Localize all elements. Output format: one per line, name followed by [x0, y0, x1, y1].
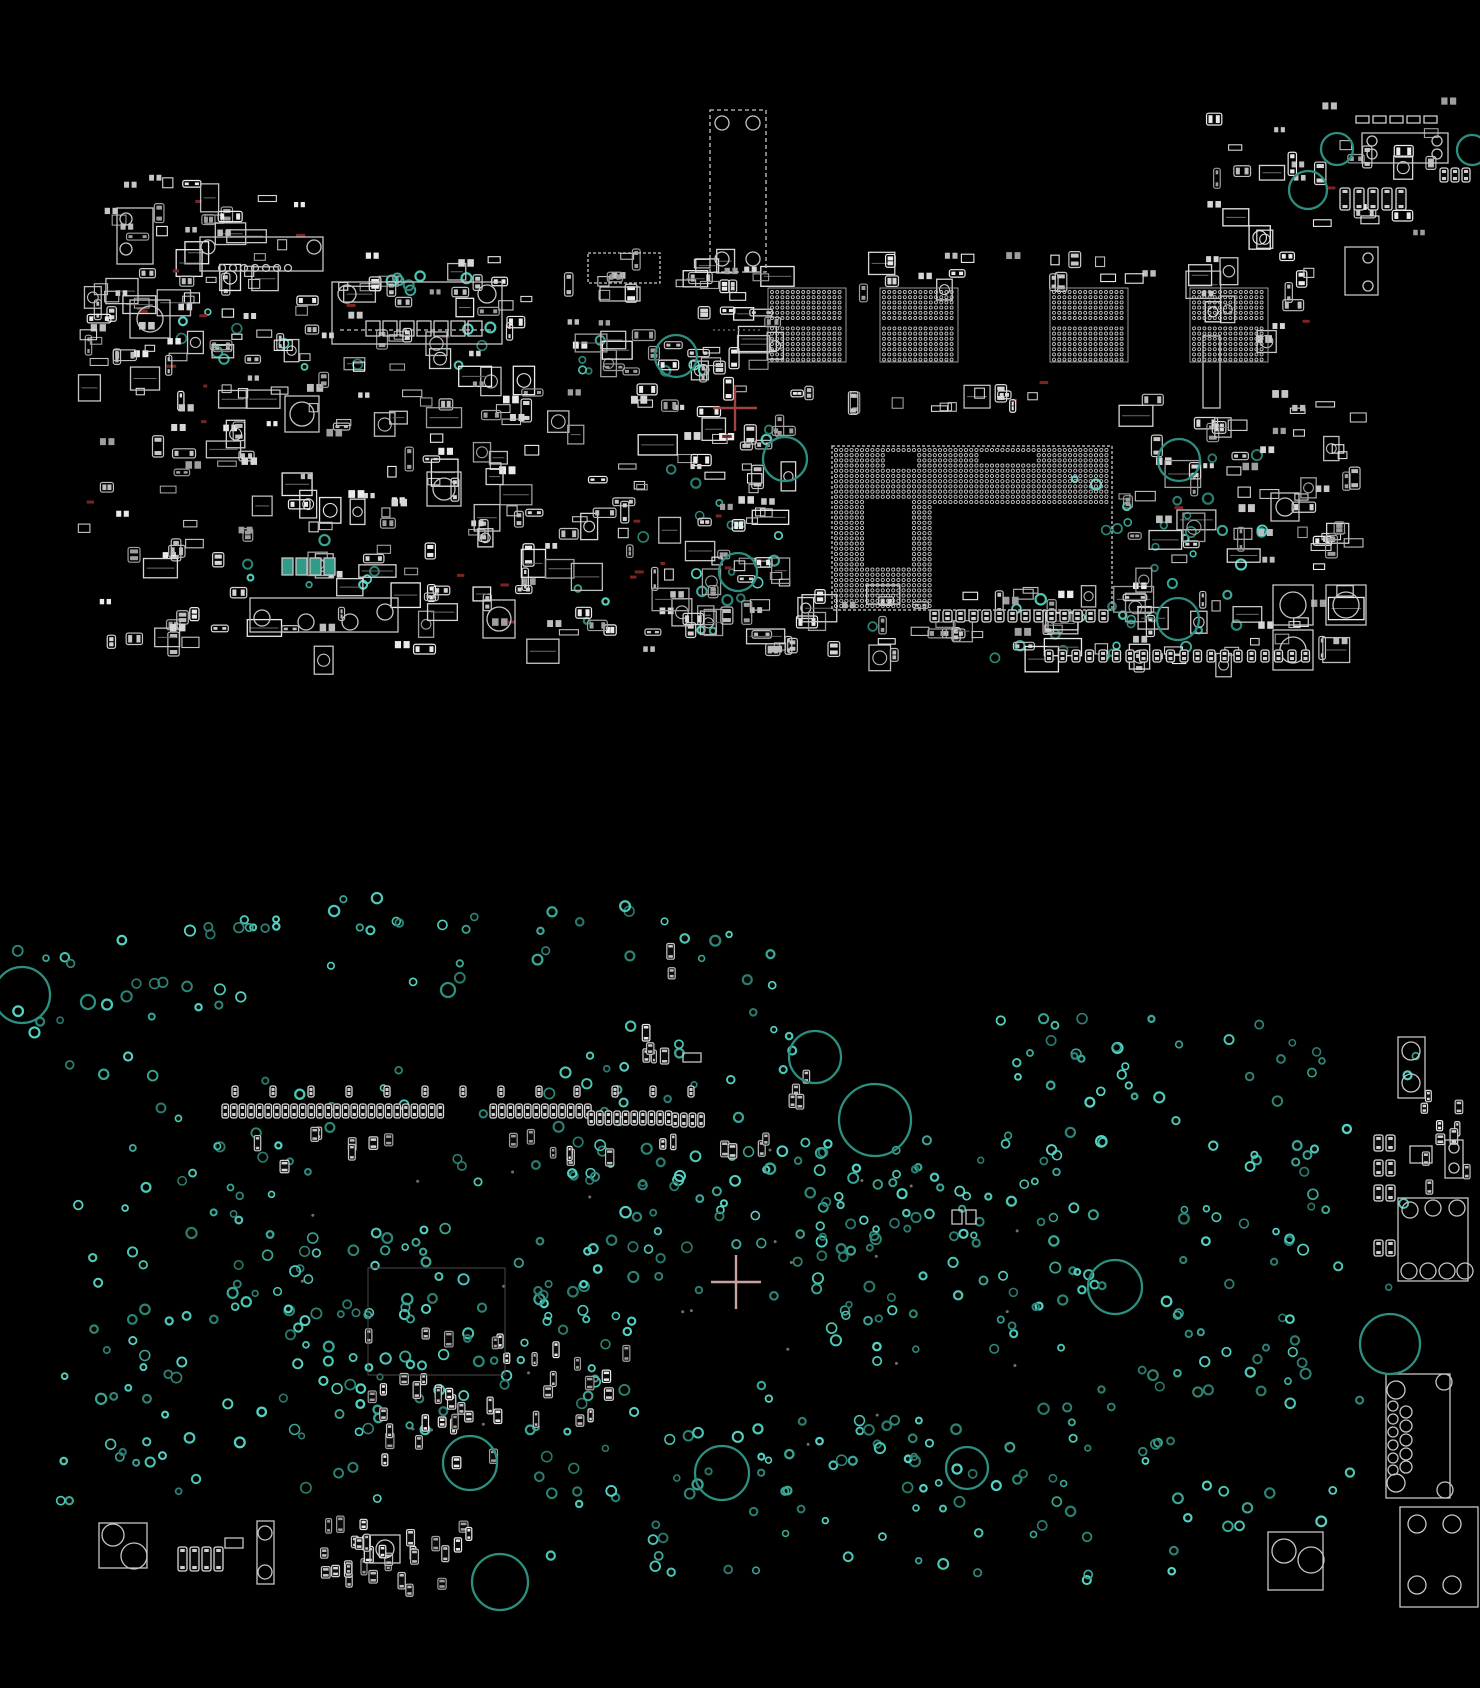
via-gray [1006, 1310, 1009, 1313]
pad-dot [1150, 270, 1155, 276]
pad-dot [1277, 657, 1281, 660]
pad-dot [1240, 545, 1243, 549]
pad-dot [1370, 210, 1374, 216]
pad-dot [670, 969, 674, 972]
pad-dot [1311, 600, 1317, 607]
pad-dot [187, 304, 193, 311]
pad-dot [456, 1539, 460, 1542]
silkscreen-label [1040, 381, 1049, 384]
pad-dot [500, 1092, 503, 1095]
pad-dot [185, 461, 192, 469]
pad [1126, 650, 1134, 662]
pad-dot [1142, 657, 1146, 660]
pad-dot [1047, 652, 1051, 655]
pad-dot [284, 1113, 287, 1116]
pad-dot [1345, 484, 1348, 488]
pad [969, 610, 978, 622]
silkscreen-label [634, 520, 641, 523]
via-gray [527, 1371, 530, 1374]
pad-dot [1328, 552, 1336, 556]
pad-dot [722, 282, 727, 286]
component-outline [324, 558, 335, 575]
pad-dot [552, 1149, 554, 1152]
pad-dot [766, 633, 770, 637]
pad-dot [705, 520, 709, 524]
pad-dot [163, 552, 168, 558]
pad-dot [644, 1037, 649, 1040]
pad-dot [310, 1113, 313, 1116]
pad-dot [1135, 534, 1139, 537]
pad-dot [350, 1156, 354, 1159]
pad-dot [508, 334, 510, 338]
pad-dot [624, 1120, 627, 1123]
pad-dot [610, 627, 614, 633]
pad-dot [370, 1579, 375, 1582]
pad-dot [458, 259, 465, 267]
pad-dot [567, 275, 571, 279]
pad-dot [624, 1113, 627, 1116]
via-gray [790, 1261, 793, 1264]
silkscreen-label [173, 269, 180, 272]
pad-dot [1061, 652, 1065, 655]
pad-dot [275, 1106, 278, 1109]
pad-dot [1182, 652, 1186, 655]
pad-dot [609, 274, 613, 279]
pad-dot [1128, 657, 1132, 660]
pad-dot [691, 1115, 694, 1118]
pad-dot [492, 618, 499, 626]
pad-dot [569, 1148, 571, 1151]
pad-dot [438, 448, 444, 455]
pad-dot [1294, 504, 1298, 510]
pad-dot [545, 1394, 551, 1397]
silkscreen-label [635, 570, 644, 573]
pad-dot [739, 522, 743, 529]
pad-dot [282, 1169, 288, 1172]
pad-dot [568, 389, 573, 395]
pad-dot [454, 289, 458, 294]
pad-dot [1345, 474, 1348, 478]
pad-dot [493, 309, 497, 313]
via-gray [1016, 1229, 1019, 1232]
pad-dot [358, 490, 365, 498]
pad-dot [130, 556, 138, 560]
pad-dot [576, 1359, 579, 1362]
pad-dot [1006, 252, 1012, 259]
component-outline [296, 558, 307, 575]
pad-dot [797, 392, 801, 395]
pad [1207, 650, 1215, 662]
pad-dot [610, 510, 614, 515]
pad-dot [290, 502, 294, 507]
pad-dot [595, 510, 599, 515]
pad-dot [997, 387, 1004, 391]
silkscreen-label [201, 420, 206, 423]
pad-dot [348, 1092, 351, 1095]
pad-dot [123, 290, 128, 296]
pad-dot [310, 1106, 313, 1109]
pad-dot [336, 429, 343, 437]
pad-dot [1024, 628, 1031, 636]
pad-dot [466, 1413, 471, 1416]
pad [1099, 650, 1107, 662]
pad-dot [526, 1106, 529, 1109]
pad-dot [787, 638, 790, 642]
pad-dot [378, 556, 382, 561]
pad-dot [424, 1088, 427, 1091]
pad-dot [427, 545, 433, 549]
pad-dot [1049, 612, 1054, 615]
pad-dot [511, 1143, 516, 1146]
pad-dot [370, 1572, 375, 1575]
via-gray [895, 1362, 898, 1365]
pad-dot [1407, 212, 1411, 219]
pad-dot [310, 1092, 313, 1095]
pad-dot [1088, 652, 1092, 655]
pad-dot [258, 1113, 261, 1116]
pad-dot [389, 520, 393, 526]
pad-dot [1088, 617, 1093, 620]
pad-dot [492, 1106, 495, 1109]
pad-dot [615, 500, 619, 504]
pad-dot [180, 1566, 185, 1569]
pad-dot [348, 312, 354, 319]
pad-dot [698, 615, 702, 622]
pad-dot [951, 272, 955, 275]
pad-dot [383, 1455, 386, 1458]
pad-dot [130, 549, 138, 553]
pad-dot [690, 1092, 693, 1095]
pad-dot [318, 1113, 321, 1116]
via-gray [416, 1180, 419, 1183]
pad-dot [408, 1542, 413, 1545]
pad-dot [734, 522, 738, 529]
pad-dot [667, 1113, 670, 1116]
pad [1221, 650, 1229, 662]
pad-dot [1088, 657, 1092, 660]
pad-dot [586, 609, 590, 616]
pad-dot [301, 202, 305, 207]
pad-dot [599, 320, 603, 325]
pad [943, 610, 952, 622]
pad-dot [830, 650, 838, 654]
pad-dot [1385, 190, 1390, 193]
pad-dot [1207, 201, 1213, 208]
pad-dot [389, 290, 394, 294]
pad-dot [652, 1088, 655, 1091]
pad-dot [1182, 657, 1186, 660]
pad-dot [561, 530, 565, 537]
pad-dot [1300, 405, 1305, 411]
pad-dot [387, 1113, 390, 1116]
pad-dot [279, 344, 282, 348]
pad-dot [424, 1427, 427, 1430]
pad-dot [673, 362, 677, 368]
silkscreen-label [630, 576, 637, 579]
pad-dot [538, 1092, 541, 1095]
pad [1034, 610, 1043, 622]
pad-dot [634, 264, 638, 268]
pad-dot [272, 1092, 275, 1095]
pad [956, 610, 965, 622]
pad-dot [370, 1393, 375, 1396]
pad-dot [1216, 170, 1219, 174]
pad-dot [327, 1106, 330, 1109]
pad-dot [997, 612, 1002, 615]
pad-dot [491, 1459, 496, 1462]
pad-dot [512, 396, 519, 404]
pad-dot [1376, 1242, 1381, 1245]
pad-dot [590, 478, 594, 480]
pad-dot [509, 1113, 512, 1116]
pad-dot [523, 401, 529, 405]
pad-dot [684, 432, 691, 440]
pad-dot [790, 640, 796, 644]
pad-dot [454, 1465, 460, 1468]
pad-dot [267, 421, 271, 426]
pad-dot [607, 1150, 612, 1153]
pad-dot [333, 1567, 338, 1570]
pad-dot [1428, 1190, 1432, 1193]
pad-dot [662, 1060, 667, 1063]
pad-dot [666, 344, 670, 347]
pad-dot [1012, 597, 1019, 605]
pad-dot [1133, 636, 1139, 643]
pad-dot [958, 617, 963, 620]
pad-dot [945, 253, 950, 259]
pad-dot [301, 1113, 304, 1116]
pad-dot [173, 541, 179, 545]
pad-dot [282, 1162, 288, 1165]
via-gray [786, 1348, 789, 1351]
pad-dot [192, 1549, 197, 1552]
pad-dot [492, 1113, 495, 1116]
pad-dot [109, 637, 113, 641]
pad-dot [1193, 543, 1197, 546]
pad-dot [778, 431, 782, 435]
pad-dot [971, 612, 976, 615]
pad-dot [641, 1120, 644, 1123]
pad-dot [757, 442, 761, 447]
pad-dot [984, 617, 989, 620]
pad-dot [1234, 454, 1238, 457]
pad-dot [518, 588, 522, 592]
pad-dot [959, 272, 963, 275]
pad-dot [702, 367, 705, 371]
pad-dot [1423, 1105, 1426, 1108]
pad-dot [888, 256, 894, 260]
pad-dot [217, 230, 222, 236]
pad-dot [395, 641, 401, 648]
pad-dot [1371, 190, 1376, 193]
pad-dot [769, 498, 775, 505]
pad-dot [249, 1106, 252, 1109]
pad-dot [180, 1549, 185, 1552]
pad-dot [430, 1106, 433, 1109]
pad-dot [1464, 177, 1468, 180]
pad-dot [329, 624, 335, 631]
pad-dot [139, 322, 146, 330]
pad-dot [1115, 652, 1119, 655]
pad-dot [284, 1106, 287, 1109]
pad-dot [523, 416, 529, 420]
pad-dot [408, 1531, 413, 1534]
pad-dot [109, 642, 113, 646]
pad-dot [443, 1547, 447, 1550]
pad-dot [1196, 657, 1200, 660]
pad-dot [446, 1343, 452, 1346]
pad-dot [350, 1146, 354, 1149]
pad-dot [1316, 485, 1322, 492]
via-gray [768, 1149, 771, 1152]
pad-dot [576, 389, 581, 395]
pad-dot [1452, 1130, 1457, 1133]
pad-dot [598, 1120, 601, 1123]
pad-dot [997, 617, 1002, 620]
pad-dot [1465, 1175, 1469, 1178]
pad-dot [275, 1113, 278, 1116]
pad-dot [444, 588, 448, 593]
pad-dot [754, 633, 758, 637]
pad-dot [322, 1549, 326, 1552]
pad-dot [1215, 201, 1221, 208]
pad-dot [672, 402, 676, 409]
pad-dot [446, 1333, 452, 1336]
pad-dot [313, 327, 317, 332]
pad-dot [1304, 652, 1308, 655]
via-gray [910, 1185, 913, 1188]
pad-dot [607, 1120, 610, 1123]
pad-dot [1196, 419, 1200, 426]
pad-dot [439, 1113, 442, 1116]
pad-dot [606, 1389, 612, 1392]
pad-dot [1442, 177, 1446, 180]
pad-dot [586, 1106, 589, 1109]
pad-dot [881, 628, 884, 632]
pad-dot [413, 1106, 416, 1109]
pad-dot [524, 391, 528, 394]
pad-dot [760, 1152, 764, 1155]
pad-dot [1062, 612, 1067, 615]
pad-dot [1209, 115, 1213, 123]
pad-dot [1265, 335, 1272, 343]
pad-dot [1245, 168, 1249, 175]
pad-dot [568, 319, 572, 324]
pad-dot [726, 379, 732, 383]
pad-dot [569, 1106, 572, 1109]
pad-dot [370, 493, 374, 498]
pad-dot [699, 1115, 702, 1118]
pad-dot [424, 1330, 428, 1333]
pad-dot [1003, 597, 1010, 605]
pad-dot [192, 227, 197, 233]
pad-dot [668, 945, 673, 948]
pad-dot [1376, 1187, 1381, 1190]
pad-dot [426, 595, 430, 598]
pad-dot [1242, 454, 1246, 457]
pad-dot [179, 613, 187, 617]
pad-dot [365, 392, 369, 397]
pad-dot [676, 344, 680, 347]
pad-dot [180, 393, 182, 397]
pad-dot [256, 1137, 259, 1140]
pad [1167, 650, 1175, 662]
pad-dot [241, 457, 248, 465]
pad-dot [787, 648, 790, 652]
pad-dot [790, 647, 796, 651]
pad-dot [744, 603, 750, 607]
pad-dot [930, 631, 934, 636]
pad-dot [651, 386, 655, 393]
pad-dot [1075, 612, 1080, 615]
pad-dot [1388, 1137, 1393, 1140]
pad-dot [703, 351, 707, 354]
pad-dot [1036, 617, 1041, 620]
pad-dot [1357, 205, 1362, 208]
via-gray [1013, 1364, 1016, 1367]
pad-dot [503, 396, 510, 404]
pad-dot [1336, 524, 1342, 528]
pad-dot [357, 1539, 362, 1542]
pad-dot [1357, 190, 1362, 193]
pad-dot [362, 1571, 365, 1574]
pad-dot [648, 1044, 652, 1047]
pad-dot [789, 428, 793, 433]
pad-dot [321, 374, 327, 378]
pad-dot [1258, 621, 1264, 628]
pad-dot [720, 504, 725, 510]
pad-dot [647, 631, 651, 633]
pad-dot [1101, 617, 1106, 620]
pad-dot [1262, 557, 1267, 563]
pad-dot [640, 396, 647, 404]
pad-dot [1315, 538, 1319, 543]
pad-dot [798, 1105, 803, 1108]
pad-dot [672, 1146, 674, 1149]
pad-dot [1385, 205, 1390, 208]
pad-dot [365, 1536, 368, 1539]
pad-dot [524, 570, 526, 574]
pad-dot [1015, 628, 1022, 636]
pad-dot [500, 1088, 503, 1091]
pad-dot [1210, 463, 1214, 468]
pad-dot [578, 1113, 581, 1116]
pad-dot [534, 1354, 536, 1357]
pad-dot [501, 618, 508, 626]
pad-dot [569, 1113, 572, 1116]
pad-dot [439, 1580, 444, 1583]
pad-dot [154, 438, 161, 442]
pad-dot [577, 1422, 582, 1425]
pad-dot [447, 448, 453, 455]
pad-dot [576, 1092, 579, 1095]
pad-dot [404, 641, 410, 648]
pad-dot [292, 1113, 295, 1116]
pad-dot [425, 458, 429, 460]
pad [1140, 650, 1148, 662]
pad-dot [407, 1592, 411, 1595]
pad-dot [244, 313, 249, 319]
pad-dot [245, 535, 251, 539]
pad-dot [710, 588, 716, 592]
pad-dot [587, 1378, 592, 1381]
pad-dot [437, 1389, 440, 1392]
pad-dot [1456, 1123, 1458, 1126]
pad-dot [454, 1458, 460, 1461]
pad-dot [1236, 657, 1240, 660]
pad-dot [357, 1545, 362, 1548]
pad-dot [433, 1538, 438, 1541]
